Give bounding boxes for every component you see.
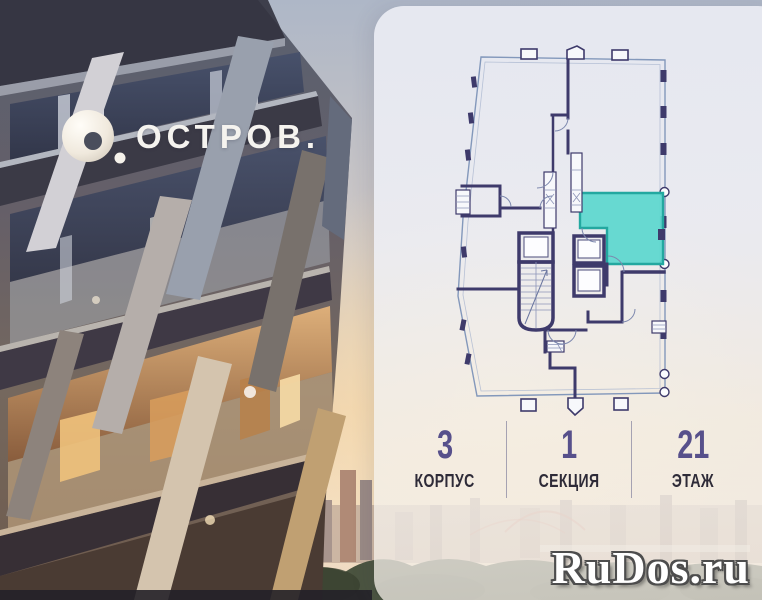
window-top-3 — [612, 50, 628, 60]
window-bottom-3 — [614, 398, 628, 410]
window-bottom-2 — [568, 398, 583, 415]
stairwell — [519, 262, 553, 330]
window-top-2 — [567, 46, 584, 59]
floorplan — [430, 40, 700, 422]
logo-mark-icon — [56, 104, 136, 176]
stat-floor-value: 21 — [677, 425, 709, 465]
vent-shafts — [544, 153, 582, 228]
logo: ОСТРОВ. — [56, 104, 136, 176]
watermark: RuDos.ru — [552, 541, 750, 594]
stat-section: 1 СЕКЦИЯ — [506, 421, 631, 498]
window-top-1 — [521, 49, 537, 59]
elevator-core — [519, 233, 604, 296]
stat-floor-label: ЭТАЖ — [672, 471, 714, 492]
stat-section-value: 1 — [561, 425, 577, 465]
stat-building: 3 КОРПУС — [383, 421, 506, 498]
stats-row: 3 КОРПУС 1 СЕКЦИЯ 21 ЭТАЖ — [383, 421, 755, 498]
tower-facade — [0, 0, 372, 600]
logo-text: ОСТРОВ. — [136, 118, 320, 156]
window-bottom-1 — [521, 399, 536, 411]
stat-floor: 21 ЭТАЖ — [632, 421, 755, 498]
listing-image: ОСТРОВ. — [0, 0, 762, 600]
stat-building-label: КОРПУС — [415, 471, 475, 492]
stat-building-value: 3 — [437, 425, 453, 465]
stat-section-label: СЕКЦИЯ — [539, 471, 600, 492]
